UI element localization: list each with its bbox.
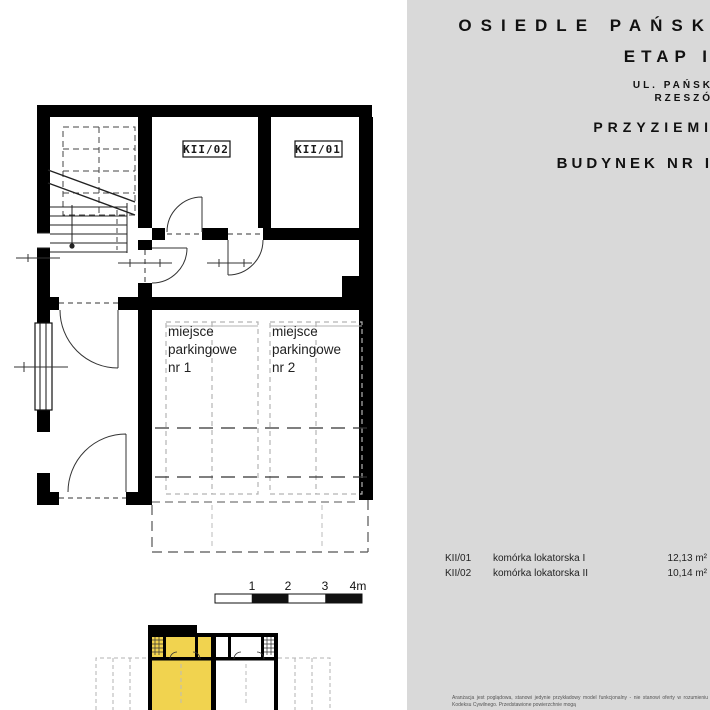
parking-space-2-label: miejsce parkingowe nr 2 [272, 324, 341, 375]
scale-bar: 1 2 3 4m [215, 579, 366, 603]
legend: KII/01 komórka lokatorska I 12,13 m² KII… [445, 551, 707, 581]
scale-4m: 4m [350, 579, 367, 593]
legend-name: komórka lokatorska II [493, 566, 668, 581]
legend-name: komórka lokatorska I [493, 551, 668, 566]
legend-row: KII/02 komórka lokatorska II 10,14 m² [445, 566, 707, 581]
mini-map [96, 625, 330, 710]
room-code-kii01: KII/01 [295, 143, 341, 156]
address-city: RZESZÓ [654, 93, 710, 104]
legend-area: 10,14 m² [668, 566, 707, 581]
floorplan-page: OSIEDLE PAŃSK ETAP I UL. PAŃSK RZESZÓ PR… [0, 0, 710, 710]
room-label-kii02: KII/02 [183, 141, 230, 157]
legend-code: KII/01 [445, 551, 493, 566]
scale-1: 1 [249, 579, 256, 593]
room-label-kii01: KII/01 [295, 141, 342, 157]
floor-plan: KII/02 KII/01 miejsce parkingowe nr 1 [0, 0, 420, 710]
parking2-line2: parkingowe [272, 342, 341, 357]
parking2-line1: miejsce [272, 324, 318, 339]
stage-title: ETAP I [624, 47, 710, 67]
parking2-line3: nr 2 [272, 360, 295, 375]
address-street: UL. PAŃSK [633, 80, 710, 91]
legend-area: 12,13 m² [668, 551, 707, 566]
building-title: BUDYNEK NR I [557, 155, 710, 172]
disclaimer-line1: Aranżacja jest poglądowa, stanowi jedyni… [452, 695, 640, 701]
stair-window [16, 233, 60, 262]
disclaimer-text: Aranżacja jest poglądowa, stanowi jedyni… [452, 695, 708, 710]
scale-2: 2 [285, 579, 292, 593]
vestibule-window [14, 323, 68, 410]
plan-walls [37, 105, 373, 505]
parking-space-1-label: miejsce parkingowe nr 1 [168, 324, 237, 375]
scale-3: 3 [322, 579, 329, 593]
parking-area: miejsce parkingowe nr 1 miejsce parkingo… [152, 322, 370, 552]
parking1-line3: nr 1 [168, 360, 191, 375]
parking1-line2: parkingowe [168, 342, 237, 357]
parking1-line1: miejsce [168, 324, 214, 339]
project-title: OSIEDLE PAŃSK [458, 16, 710, 36]
room-code-kii02: KII/02 [183, 143, 229, 156]
legend-code: KII/02 [445, 566, 493, 581]
legend-row: KII/01 komórka lokatorska I 12,13 m² [445, 551, 707, 566]
title-panel [407, 0, 710, 710]
level-title: PRZYZIEMI [593, 119, 710, 135]
staircase [48, 127, 135, 253]
